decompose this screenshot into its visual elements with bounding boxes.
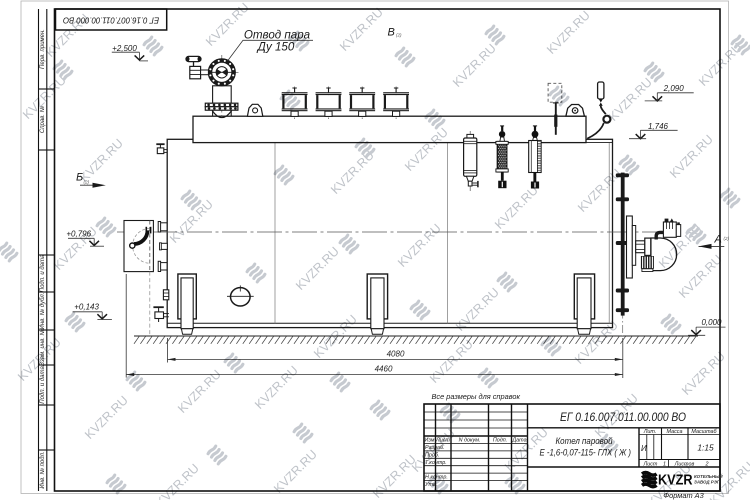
svg-text:И: И [641,444,647,453]
svg-text:Масштаб: Масштаб [691,429,717,435]
svg-text:Инв. № дубл.: Инв. № дубл. [39,293,46,330]
svg-text:N докум.: N докум. [459,438,481,444]
svg-text:+2,500: +2,500 [112,44,137,53]
svg-text:Лист: Лист [643,461,658,467]
svg-text:KVZR.RU: KVZR.RU [203,0,252,49]
svg-text:(2): (2) [396,33,402,38]
svg-text:0,000: 0,000 [701,318,722,327]
svg-text:Все размеры для справок: Все размеры для справок [432,392,521,401]
svg-text:1,746: 1,746 [648,122,669,131]
svg-text:Подп.: Подп. [493,438,507,444]
svg-text:KVZR.RU: KVZR.RU [606,75,655,124]
svg-text:KVZR.RU: KVZR.RU [337,5,386,54]
svg-text:(2): (2) [724,236,730,241]
svg-text:Лит.: Лит. [643,429,657,435]
svg-text:KVZR.RU: KVZR.RU [544,8,593,57]
svg-text:Инв. № подл.: Инв. № подл. [39,451,46,488]
svg-text:2,090: 2,090 [663,84,685,93]
svg-text:KVZR.RU: KVZR.RU [450,41,499,90]
svg-text:KVZR.RU: KVZR.RU [82,393,131,442]
svg-text:4080: 4080 [387,349,405,358]
svg-text:KVZR.RU: KVZR.RU [667,132,716,181]
svg-text:А: А [714,234,722,246]
svg-text:Ду 150: Ду 150 [256,41,295,54]
svg-text:+0,143: +0,143 [74,302,99,311]
svg-text:KVZR.RU: KVZR.RU [153,461,202,500]
svg-text:1:15: 1:15 [697,443,714,453]
svg-text:Масса: Масса [667,429,683,435]
svg-text:KVZR.RU: KVZR.RU [370,452,419,500]
svg-text:ЗАВОД РЭП: ЗАВОД РЭП [694,480,721,485]
svg-text:КОТЕЛЬНЫЙ: КОТЕЛЬНЫЙ [694,474,723,479]
svg-text:KVZR.RU: KVZR.RU [271,447,320,496]
svg-text:Е -1,6-0,07-115- ГЛХ ( Ж ): Е -1,6-0,07-115- ГЛХ ( Ж ) [540,448,632,458]
svg-text:Подп. и дата: Подп. и дата [40,254,46,292]
svg-text:2: 2 [705,461,709,467]
svg-text:KVZR.RU: KVZR.RU [676,252,725,301]
svg-text:KVZR.RU: KVZR.RU [427,337,476,386]
svg-text:В: В [388,27,395,39]
svg-text:KVZR.RU: KVZR.RU [77,136,126,185]
svg-text:Подп. и дата: Подп. и дата [40,366,46,404]
svg-text:KVZR.RU: KVZR.RU [252,363,301,412]
svg-text:4460: 4460 [375,365,393,374]
svg-text:1: 1 [663,461,666,467]
